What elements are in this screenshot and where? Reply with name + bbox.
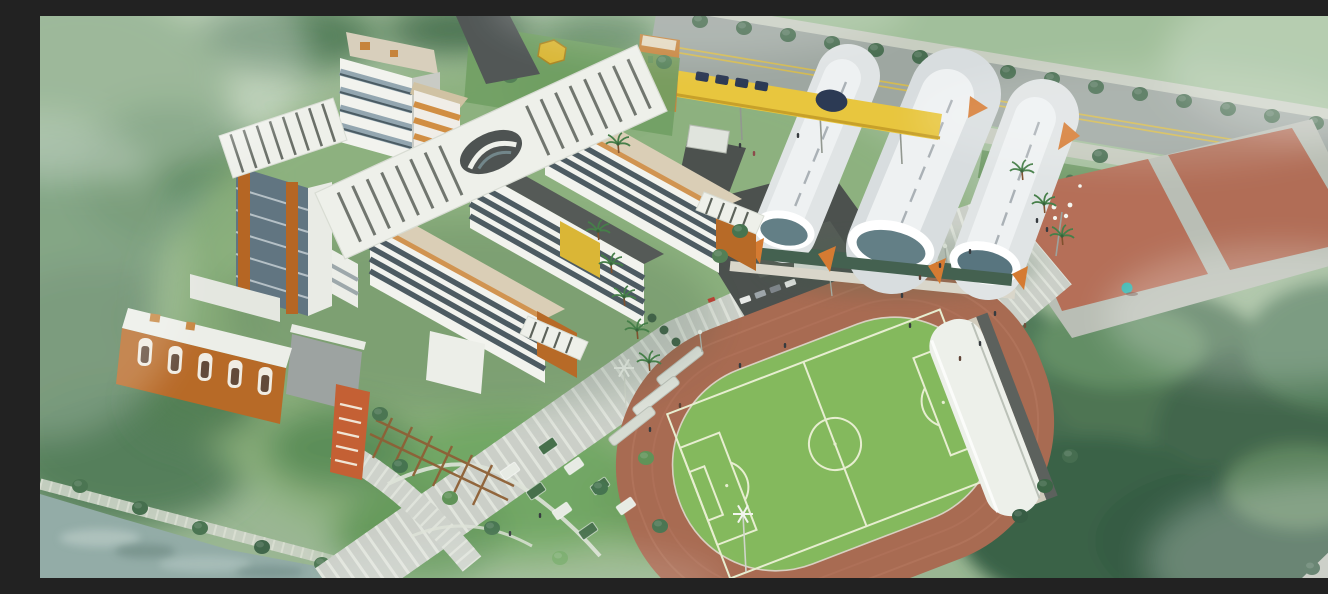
haze-veil [40,16,1328,578]
campus-aerial-rendering: Master-plan rendering of a school campus [40,16,1328,578]
